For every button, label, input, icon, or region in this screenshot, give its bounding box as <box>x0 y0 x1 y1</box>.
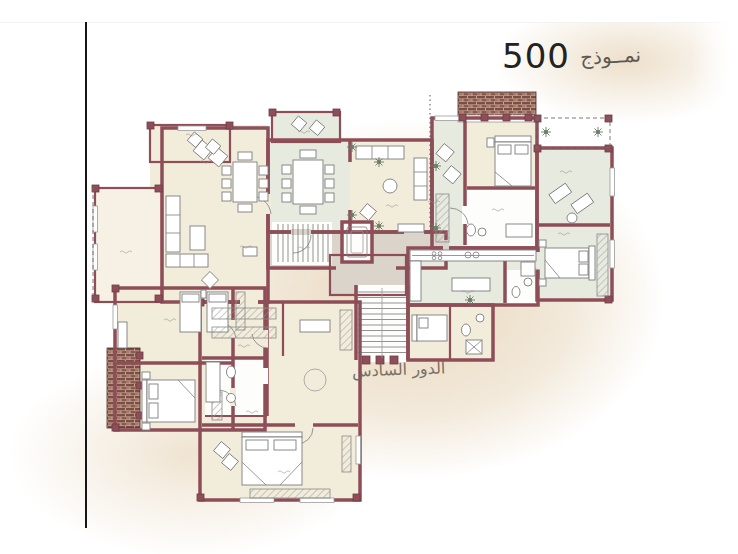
brick-screen-left <box>107 348 140 428</box>
title-model-word: نمــوذج <box>579 42 641 69</box>
floor-label: الدور السادس <box>352 358 446 380</box>
drawing-title: 500 نمــوذج <box>502 36 641 76</box>
floor-plan-drawing <box>0 0 738 554</box>
page-right-margin <box>692 0 738 554</box>
title-model-number: 500 <box>502 36 570 76</box>
scanned-floor-plan-page: 500 نمــوذج الدور السادس <box>0 0 738 554</box>
